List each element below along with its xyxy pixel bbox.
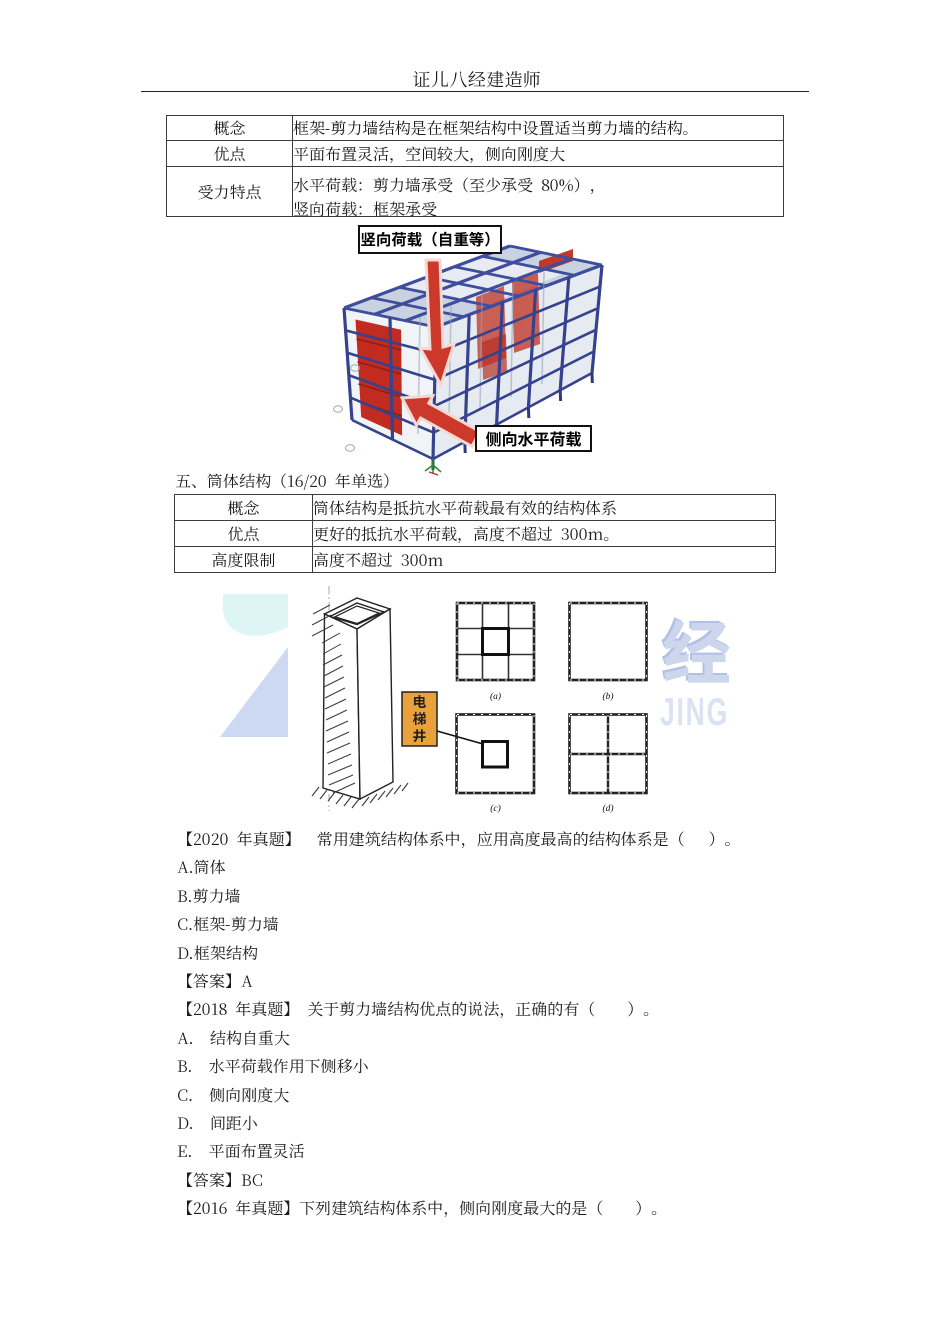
svg-text:(b): (b)	[602, 691, 613, 702]
svg-text:(c): (c)	[490, 803, 501, 814]
svg-text:(a): (a)	[490, 691, 501, 702]
svg-text:(d): (d)	[602, 803, 613, 814]
